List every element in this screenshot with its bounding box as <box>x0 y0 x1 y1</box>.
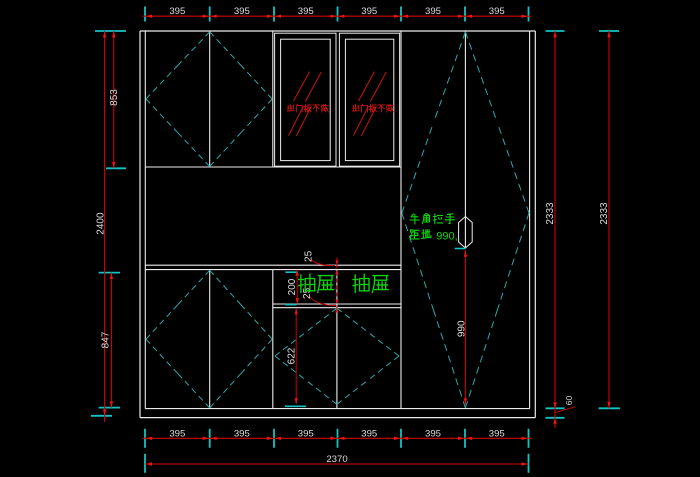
svg-text:395: 395 <box>489 429 505 440</box>
svg-text:2333: 2333 <box>599 202 610 225</box>
svg-text:2333: 2333 <box>545 202 556 225</box>
svg-text:395: 395 <box>298 6 314 17</box>
svg-text:25: 25 <box>304 250 315 262</box>
svg-text:2400: 2400 <box>96 212 107 235</box>
svg-text:395: 395 <box>425 429 441 440</box>
svg-text:395: 395 <box>298 429 314 440</box>
svg-text:847: 847 <box>101 331 112 348</box>
svg-text:395: 395 <box>169 6 185 17</box>
svg-text:395: 395 <box>234 6 250 17</box>
svg-text:200: 200 <box>287 278 298 295</box>
svg-text:395: 395 <box>425 6 441 17</box>
svg-text:395: 395 <box>361 429 377 440</box>
svg-text:395: 395 <box>234 429 250 440</box>
svg-text:622: 622 <box>287 347 298 364</box>
svg-text:25: 25 <box>302 287 313 299</box>
svg-text:2370: 2370 <box>326 454 347 465</box>
svg-text:395: 395 <box>361 6 377 17</box>
svg-text:60: 60 <box>564 396 574 406</box>
svg-text:853: 853 <box>109 89 120 106</box>
svg-text:395: 395 <box>489 6 505 17</box>
svg-text:395: 395 <box>169 429 185 440</box>
svg-text:990,: 990, <box>436 230 457 242</box>
svg-text:990: 990 <box>456 320 467 337</box>
